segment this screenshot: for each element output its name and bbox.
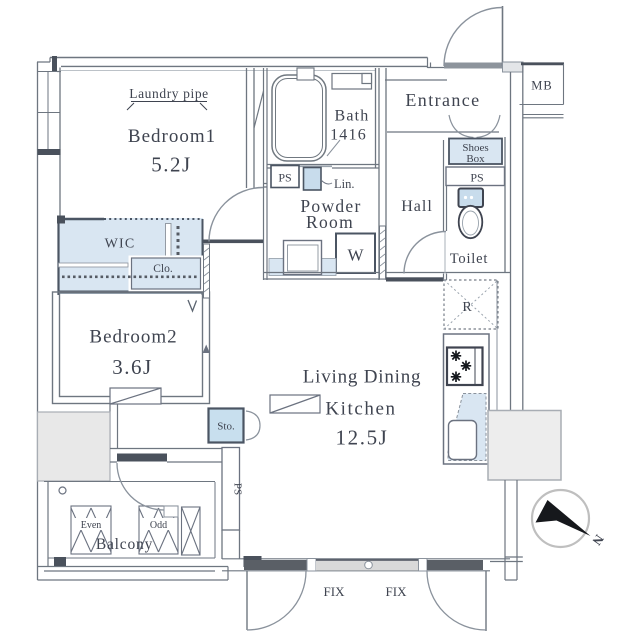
svg-text:Balcony: Balcony xyxy=(96,536,153,553)
svg-text:PS: PS xyxy=(470,171,483,185)
svg-text:FIX: FIX xyxy=(386,584,408,599)
svg-text:5.2J: 5.2J xyxy=(151,153,191,177)
svg-text:Lin.: Lin. xyxy=(334,177,354,191)
svg-text:Clo.: Clo. xyxy=(153,263,173,275)
svg-text:Box: Box xyxy=(466,153,485,165)
svg-text:W: W xyxy=(347,246,364,265)
svg-text:12.5J: 12.5J xyxy=(336,426,389,450)
svg-text:PS: PS xyxy=(278,171,291,185)
svg-text:Toilet: Toilet xyxy=(450,251,488,267)
svg-text:Entrance: Entrance xyxy=(405,90,480,110)
svg-text:Room: Room xyxy=(306,212,354,232)
svg-text:Kitchen: Kitchen xyxy=(325,399,396,420)
svg-text:FIX: FIX xyxy=(324,584,346,599)
svg-text:Living Dining: Living Dining xyxy=(303,367,422,388)
svg-text:3.6J: 3.6J xyxy=(112,355,152,379)
svg-text:Bedroom1: Bedroom1 xyxy=(128,126,216,147)
svg-text:PS: PS xyxy=(232,483,244,495)
svg-text:R: R xyxy=(462,300,472,315)
svg-text:Sto.: Sto. xyxy=(217,421,235,433)
svg-text:Laundry pipe: Laundry pipe xyxy=(129,86,209,101)
svg-text:WIC: WIC xyxy=(105,237,136,252)
svg-text:Bedroom2: Bedroom2 xyxy=(89,327,177,348)
svg-text:Bath: Bath xyxy=(334,108,369,125)
svg-text:1416: 1416 xyxy=(330,127,367,144)
svg-text:Even: Even xyxy=(81,520,102,531)
svg-text:Odd: Odd xyxy=(150,520,167,531)
svg-text:Hall: Hall xyxy=(401,198,433,215)
svg-text:MB: MB xyxy=(531,79,552,93)
